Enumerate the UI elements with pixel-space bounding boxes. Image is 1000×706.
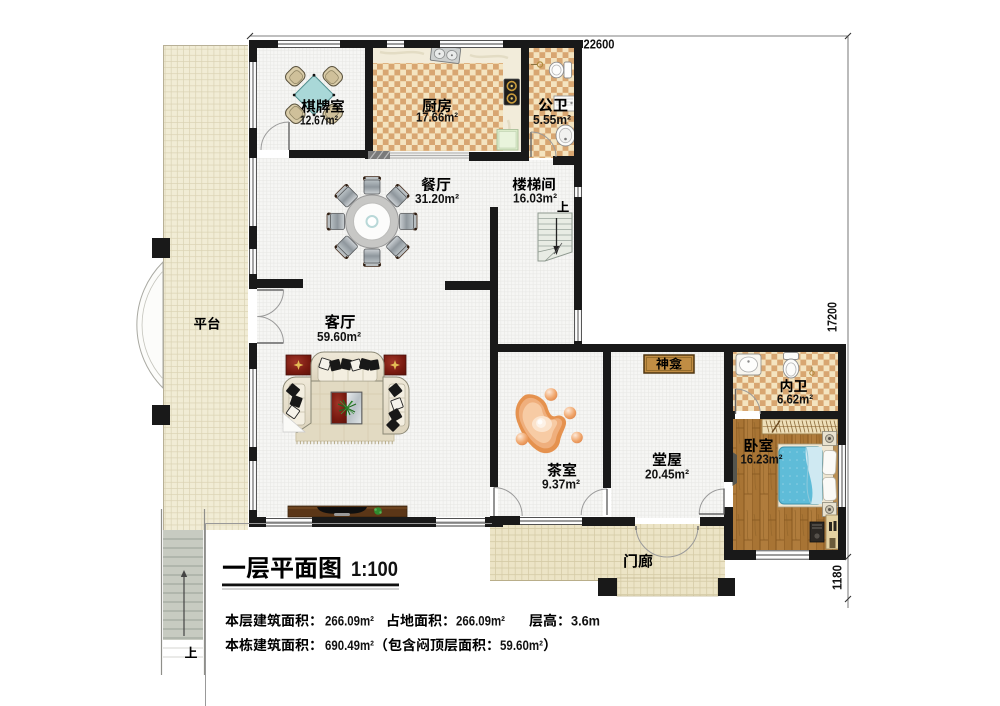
svg-text:59.60m²: 59.60m²: [500, 637, 543, 653]
svg-text:22600: 22600: [584, 37, 615, 52]
svg-text:17200: 17200: [825, 302, 840, 332]
svg-text:266.09m²: 266.09m²: [325, 613, 374, 629]
svg-text:6.62m²: 6.62m²: [777, 393, 813, 407]
svg-text:16.23m²: 16.23m²: [741, 452, 784, 467]
svg-text:20.45m²: 20.45m²: [645, 467, 690, 482]
svg-text:1:100: 1:100: [351, 557, 398, 581]
svg-text:12.67m²: 12.67m²: [300, 113, 339, 128]
svg-text:266.09m²: 266.09m²: [456, 613, 505, 629]
svg-text:9.37m²: 9.37m²: [542, 477, 581, 492]
svg-text:1180: 1180: [830, 565, 845, 590]
svg-text:3.6m: 3.6m: [571, 613, 600, 629]
svg-text:16.03m²: 16.03m²: [513, 191, 558, 206]
svg-text:5.55m²: 5.55m²: [533, 112, 572, 127]
svg-text:690.49m²: 690.49m²: [325, 637, 374, 653]
svg-text:59.60m²: 59.60m²: [317, 329, 362, 344]
svg-text:17.66m²: 17.66m²: [416, 110, 459, 125]
svg-text:31.20m²: 31.20m²: [415, 191, 460, 206]
